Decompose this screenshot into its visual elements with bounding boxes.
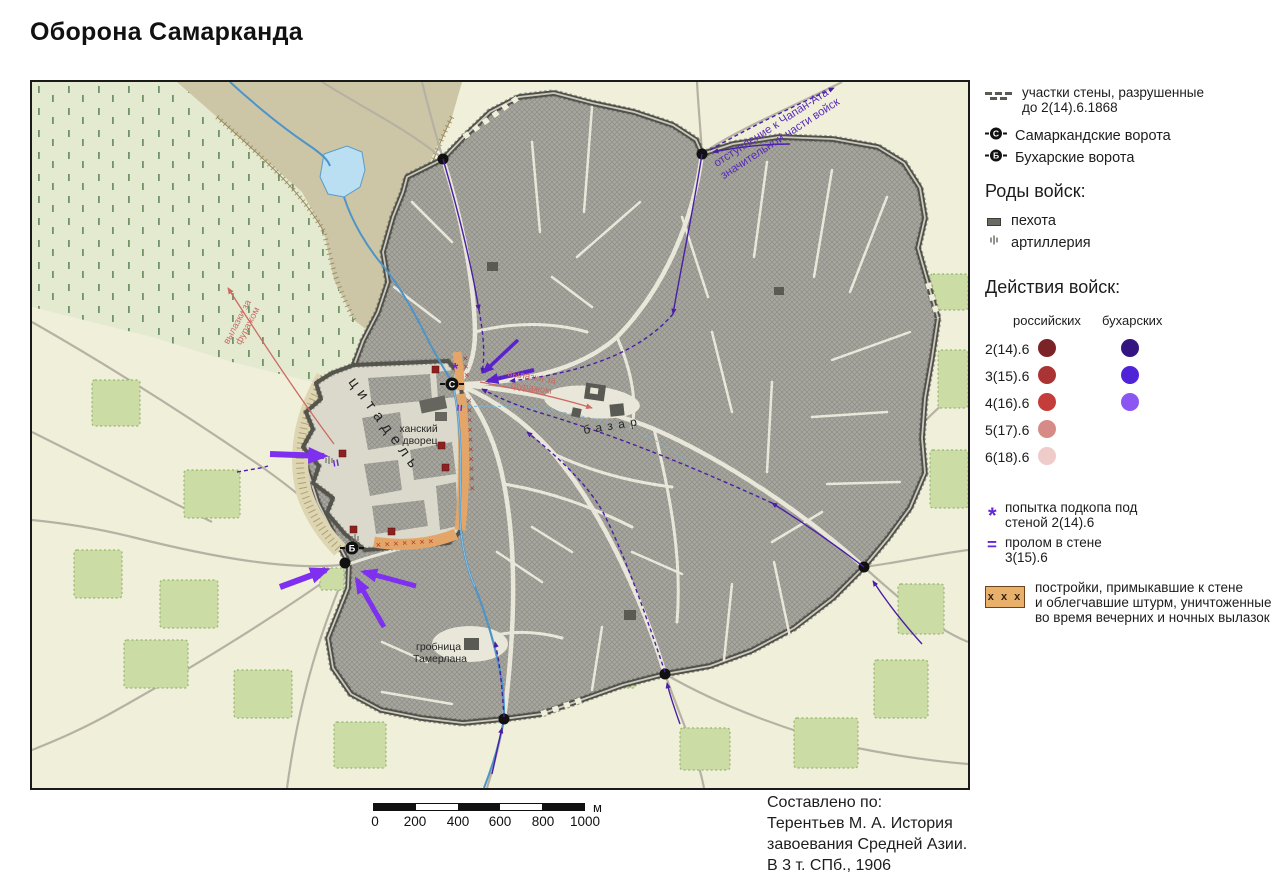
scale-bar-segments: [373, 803, 585, 811]
legend: участки стены, разрушенные до 2(14).6.18…: [985, 85, 1277, 665]
page-title: Оборона Самарканда: [30, 18, 303, 47]
russian-dot: [1038, 393, 1056, 411]
scale-bar: м 0 200 400 600 800 1000: [373, 800, 633, 836]
tomb-label: гробница Тамерлана: [413, 641, 467, 665]
breach-label: пролом в стене 3(15).6: [1005, 535, 1102, 565]
ruined-wall-icon: [985, 91, 1015, 103]
col-russian: российских: [1013, 313, 1081, 328]
troop-types-header: Роды войск:: [985, 181, 1086, 202]
scale-tick: 0: [371, 814, 379, 829]
scale-tick: 600: [489, 814, 512, 829]
svg-text:С: С: [993, 129, 999, 139]
bukhara-gate-icon: Б: [985, 148, 1009, 163]
mine-symbol: *: [988, 503, 997, 529]
russian-dot: [1038, 339, 1056, 357]
scale-tick: 1000: [570, 814, 600, 829]
destroyed-buildings-label: постройки, примыкавшие к стене и облегча…: [1035, 580, 1271, 625]
map-frame: ×××××××××× ××××××× ×××: [30, 80, 970, 790]
bukharan-dot: [1121, 366, 1139, 384]
bukharan-dot: [1121, 339, 1139, 357]
scale-tick: 400: [447, 814, 470, 829]
artillery-label: артиллерия: [1011, 235, 1091, 251]
bukhara-gate-letter: Б: [349, 544, 356, 554]
page: Оборона Самарканда: [0, 0, 1280, 895]
bukharan-dot: [1121, 393, 1139, 411]
mine-symbol-map: *: [452, 361, 459, 378]
samarkand-gate-label: Самаркандские ворота: [1015, 128, 1171, 144]
col-bukharan: бухарских: [1102, 313, 1162, 328]
samarkand-gate-icon: С: [985, 126, 1009, 141]
russian-dot: [1038, 447, 1056, 465]
russian-dot: [1038, 366, 1056, 384]
palace-label: ханский дворец: [399, 423, 440, 447]
russian-dot: [1038, 420, 1056, 438]
bukhara-gate-label: Бухарские ворота: [1015, 150, 1134, 166]
scale-unit: м: [593, 800, 602, 815]
infantry-label: пехота: [1011, 213, 1056, 229]
destroyed-buildings-icon: х х х: [985, 586, 1025, 608]
breach-symbol: =: [987, 535, 997, 555]
samarkand-gate-letter: С: [449, 380, 456, 390]
artillery-icon: [988, 233, 1000, 247]
breach-symbol-map-2: =: [452, 404, 467, 412]
mine-label: попытка подкопа под стеной 2(14).6: [1005, 500, 1137, 530]
actions-header: Действия войск:: [985, 277, 1120, 298]
scale-tick: 800: [532, 814, 555, 829]
samarkand-map: ×××××××××× ××××××× ×××: [32, 82, 968, 788]
scale-tick: 200: [404, 814, 427, 829]
svg-text:Б: Б: [993, 151, 999, 161]
infantry-icon: [987, 218, 1001, 226]
attribution: Составлено по: Терентьев М. А. История з…: [767, 792, 967, 876]
ruined-wall-label: участки стены, разрушенные до 2(14).6.18…: [1022, 85, 1204, 115]
